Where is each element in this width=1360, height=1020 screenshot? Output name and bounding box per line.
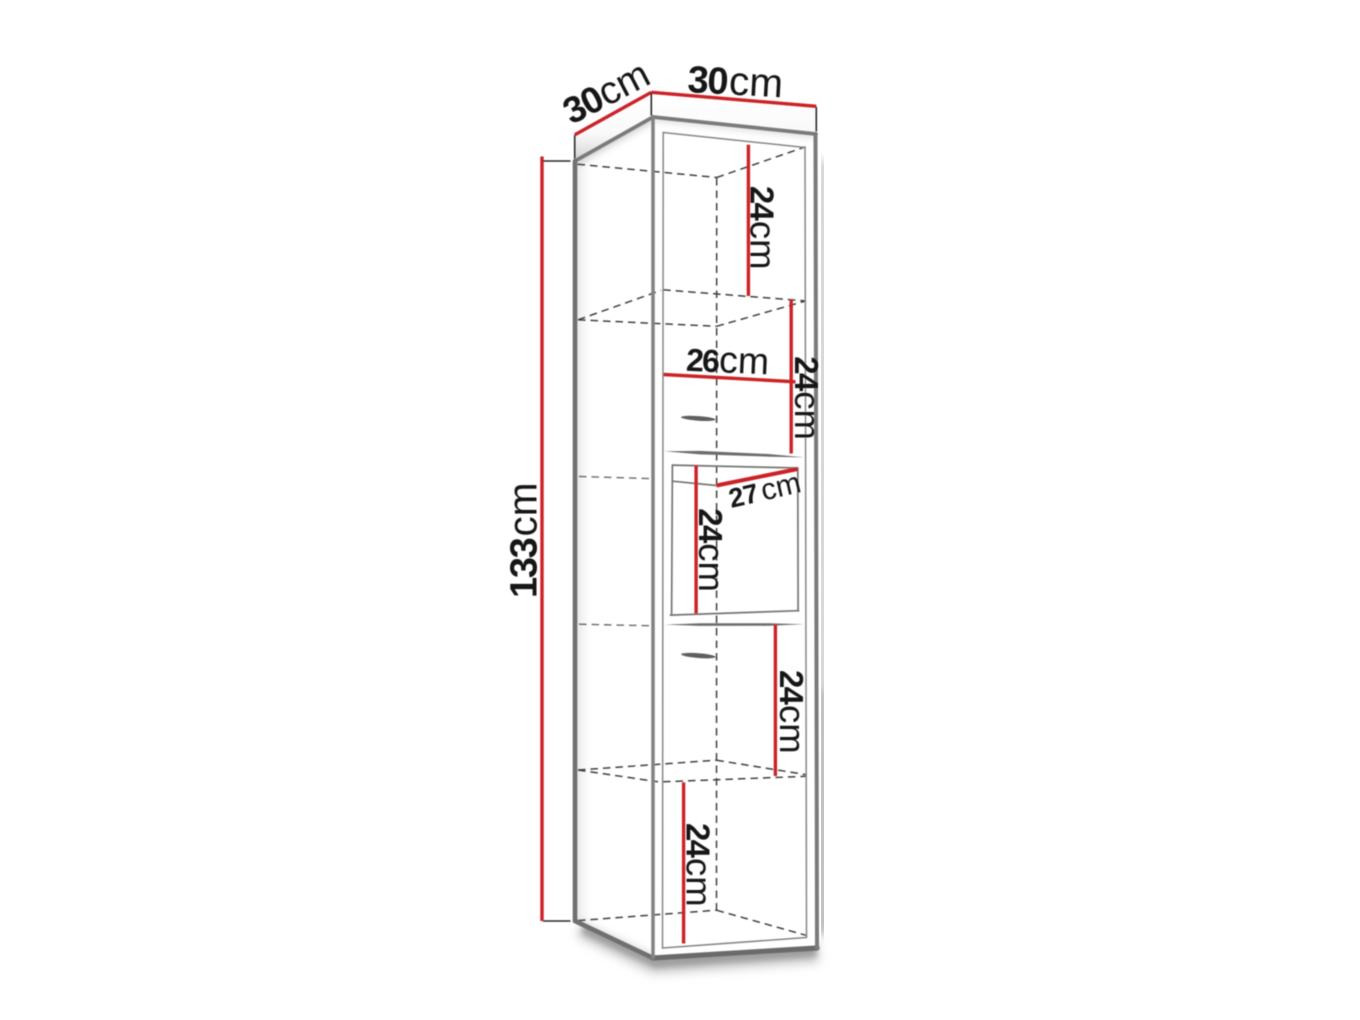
svg-text:30: 30	[686, 59, 728, 103]
svg-text:24: 24	[744, 186, 781, 222]
svg-text:cm: cm	[787, 391, 828, 440]
svg-text:26: 26	[685, 342, 720, 379]
svg-text:cm: cm	[718, 338, 770, 382]
svg-text:cm: cm	[678, 858, 719, 907]
svg-text:24: 24	[679, 823, 716, 859]
svg-text:133: 133	[504, 538, 546, 598]
svg-text:cm: cm	[500, 483, 546, 537]
svg-text:24: 24	[788, 356, 825, 392]
svg-text:cm: cm	[772, 705, 813, 754]
svg-text:24: 24	[773, 670, 810, 706]
svg-text:cm: cm	[728, 57, 784, 106]
svg-text:24: 24	[692, 508, 729, 544]
svg-text:cm: cm	[743, 221, 784, 270]
svg-text:cm: cm	[691, 543, 732, 592]
